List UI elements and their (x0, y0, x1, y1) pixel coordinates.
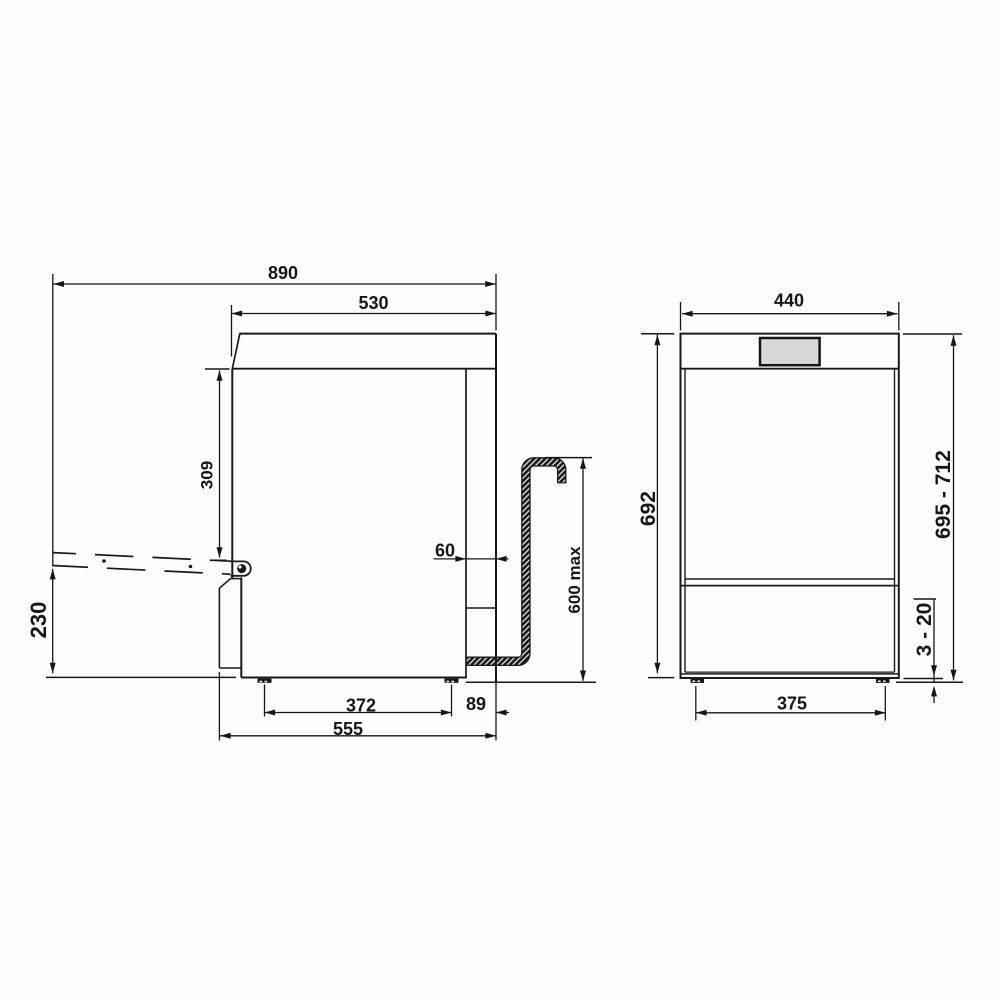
svg-text:230: 230 (26, 602, 51, 639)
svg-text:600 max: 600 max (565, 546, 584, 614)
svg-text:309: 309 (198, 461, 217, 489)
svg-text:440: 440 (774, 291, 804, 311)
svg-text:692: 692 (637, 491, 660, 526)
svg-text:555: 555 (333, 719, 363, 739)
svg-text:695 - 712: 695 - 712 (932, 450, 955, 539)
svg-text:89: 89 (466, 694, 486, 714)
svg-text:375: 375 (777, 694, 807, 714)
svg-text:3 - 20: 3 - 20 (913, 603, 936, 657)
svg-text:372: 372 (346, 696, 376, 716)
svg-text:890: 890 (268, 263, 298, 283)
svg-text:60: 60 (435, 541, 455, 561)
svg-text:530: 530 (358, 293, 388, 313)
